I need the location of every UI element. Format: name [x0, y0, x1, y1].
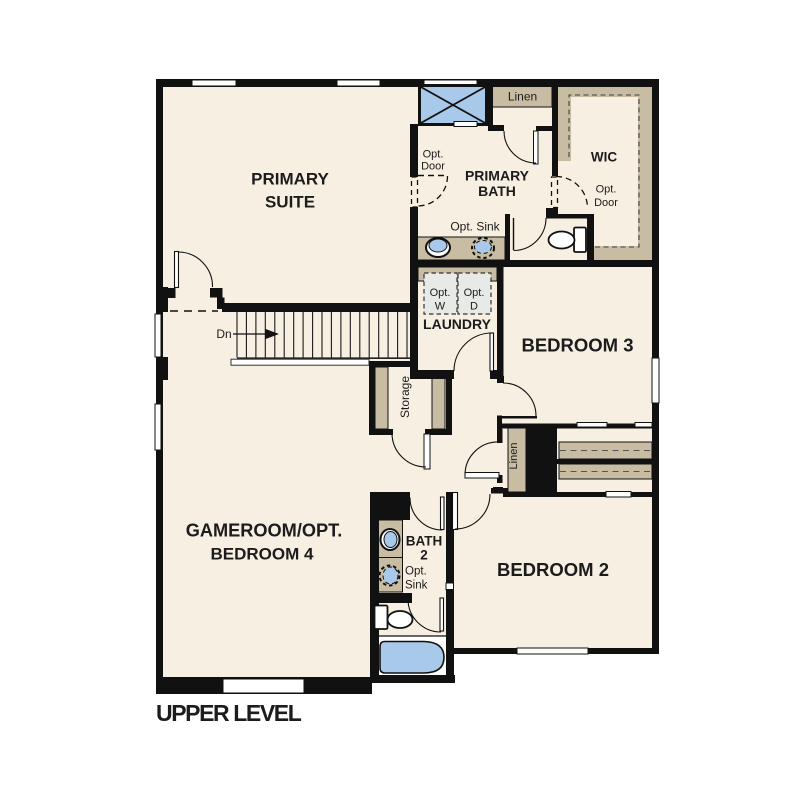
- svg-text:PRIMARY: PRIMARY: [251, 170, 329, 189]
- svg-text:D: D: [470, 301, 478, 313]
- svg-text:Opt.: Opt.: [464, 287, 485, 299]
- svg-text:WIC: WIC: [591, 150, 617, 165]
- svg-text:GAMEROOM/OPT.: GAMEROOM/OPT.: [186, 521, 343, 541]
- svg-text:Opt. Sink: Opt. Sink: [450, 220, 500, 234]
- svg-text:Storage: Storage: [398, 376, 412, 418]
- svg-text:Door: Door: [594, 197, 618, 209]
- svg-text:Opt.: Opt.: [430, 287, 451, 299]
- svg-text:BATH: BATH: [406, 534, 443, 549]
- svg-text:BATH: BATH: [478, 183, 516, 199]
- svg-text:2: 2: [420, 548, 428, 563]
- svg-text:Opt.: Opt.: [596, 184, 617, 196]
- svg-text:SUITE: SUITE: [265, 193, 315, 212]
- svg-text:BEDROOM 2: BEDROOM 2: [497, 559, 609, 580]
- svg-text:PRIMARY: PRIMARY: [465, 168, 530, 184]
- svg-text:UPPER LEVEL: UPPER LEVEL: [156, 700, 302, 726]
- svg-text:BEDROOM 4: BEDROOM 4: [211, 545, 315, 564]
- svg-text:BEDROOM 3: BEDROOM 3: [521, 335, 633, 356]
- svg-text:Opt.: Opt.: [405, 566, 427, 578]
- svg-text:Dn: Dn: [216, 327, 231, 341]
- svg-text:Opt.: Opt.: [423, 149, 444, 161]
- svg-text:Linen: Linen: [508, 443, 520, 470]
- svg-text:Door: Door: [421, 161, 445, 173]
- svg-text:Sink: Sink: [405, 580, 428, 592]
- svg-text:Linen: Linen: [508, 90, 537, 104]
- svg-text:LAUNDRY: LAUNDRY: [423, 316, 492, 332]
- svg-text:W: W: [435, 301, 446, 313]
